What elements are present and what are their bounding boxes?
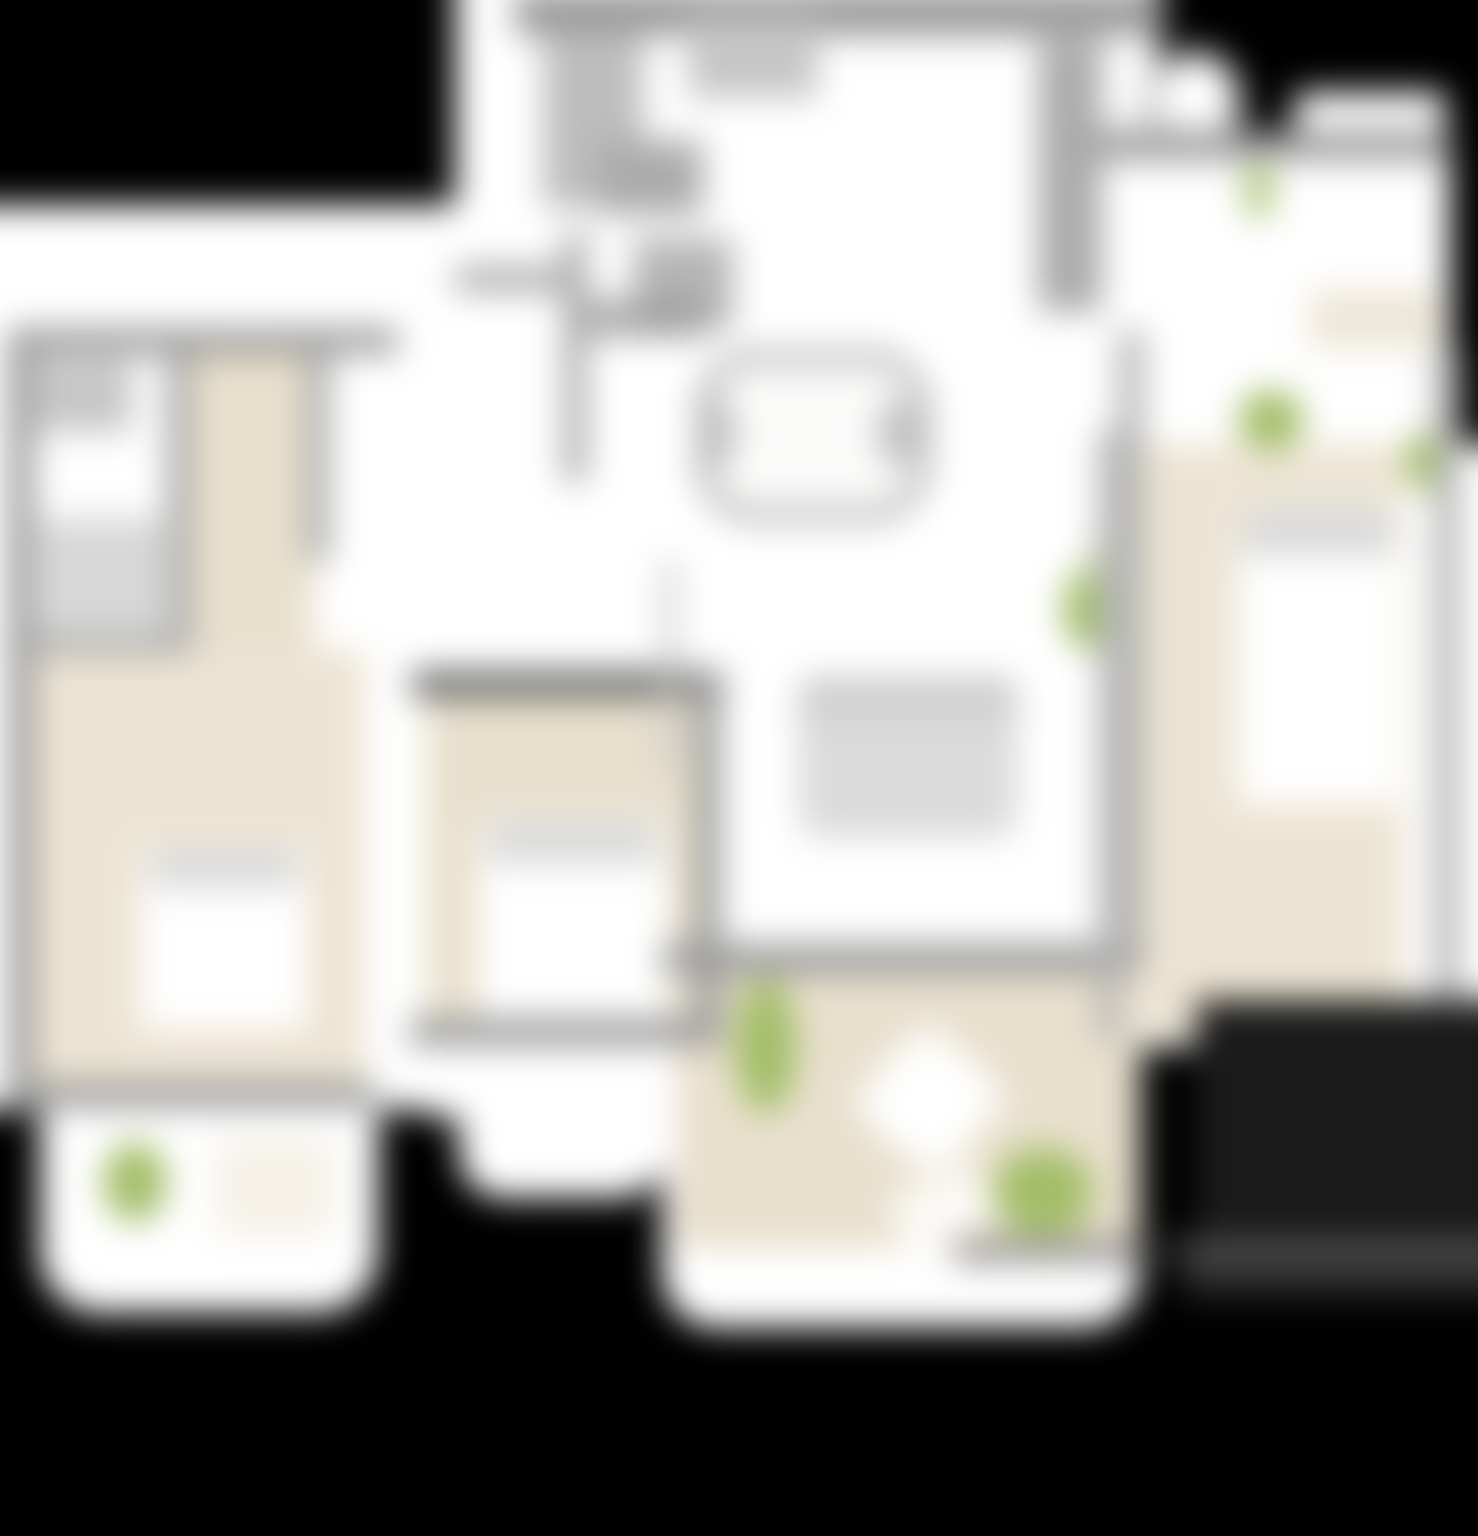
plant-balcony-left: [103, 1142, 167, 1222]
room-top-right-floor-hint: [1310, 290, 1438, 348]
wall-living-divider: [585, 298, 705, 338]
tv-sideboard: [662, 560, 678, 770]
corridor-lower-tab: [459, 1038, 664, 1198]
plant-terrace-left: [735, 978, 797, 1113]
bathroom-fixture-top: [36, 360, 132, 432]
wall-top-band: [515, 0, 1165, 36]
wall-right-outer: [1434, 350, 1460, 1010]
terrace-star-square-b: [875, 1045, 985, 1155]
plant-room-top-right: [1243, 162, 1275, 220]
wall-bedroom-right-left: [1098, 430, 1122, 1040]
wall-entry-stub: [455, 266, 585, 292]
wall-hallway-stub: [306, 352, 330, 562]
wall-midroom-bottom: [410, 1018, 720, 1046]
wall-left-top: [8, 328, 398, 354]
bed-right-headboard: [1242, 508, 1394, 556]
scene-blur-layer: [0, 0, 1478, 1536]
shadow-panel: [1196, 1000, 1478, 1242]
kitchen-upper-blob: [688, 18, 818, 98]
wall-left-bottom: [14, 1082, 376, 1108]
bed-middle-pillows: [488, 822, 658, 864]
wall-left-outer: [8, 328, 34, 1098]
kitchen-island: [598, 140, 703, 215]
terrace-star-shape: [845, 1015, 1015, 1185]
closet-column: [1038, 40, 1102, 312]
shadow-band-light: [1182, 1238, 1478, 1268]
shadow-band-left-extension: [955, 1238, 1195, 1264]
wall-terrace-top: [662, 944, 1140, 974]
dining-chair-right: [878, 398, 914, 468]
blurred-floorplan-canvas: [0, 0, 1478, 1536]
sofa: [798, 700, 1018, 838]
plant-bedroom-right-top: [1238, 390, 1304, 450]
bathroom-fixture-bottom: [38, 518, 170, 636]
dining-chair-left: [700, 398, 736, 468]
floor-plan: [0, 0, 1478, 1536]
balcony-left-floor-hint: [215, 1140, 335, 1235]
shadow-band-dim: [1182, 1268, 1478, 1298]
wall-right-section-top: [1098, 130, 1448, 160]
wall-midroom-right: [695, 670, 721, 1045]
bed-left-pillows: [150, 848, 298, 888]
